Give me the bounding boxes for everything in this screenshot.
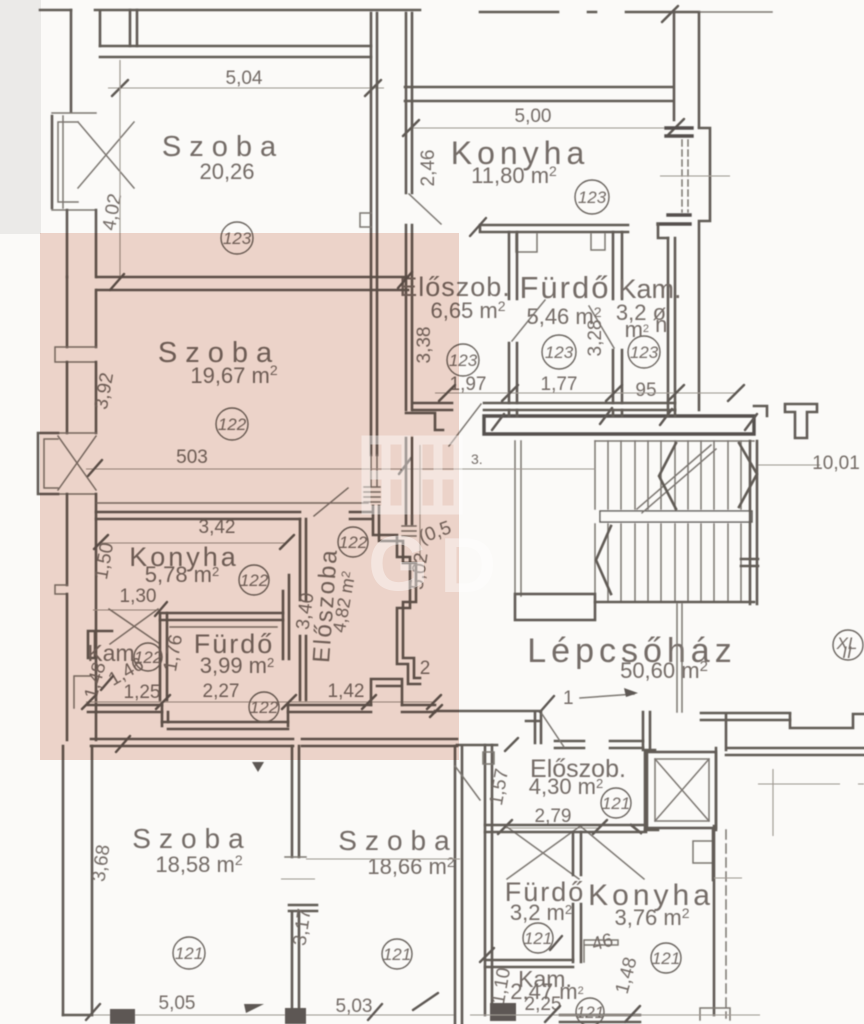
svg-text:50,60 m2: 50,60 m2 [620,658,708,683]
svg-text:5,03: 5,03 [336,996,373,1017]
svg-text:95: 95 [635,380,656,401]
svg-text:3.: 3. [471,451,483,467]
svg-text:Fürdő: Fürdő [520,270,611,305]
svg-text:3,76 m2: 3,76 m2 [614,905,689,930]
svg-text:2,46: 2,46 [418,150,439,187]
svg-text:121: 121 [524,929,552,948]
svg-text:3,28: 3,28 [585,320,606,357]
svg-text:G: G [368,519,429,607]
svg-text:3,2 m2: 3,2 m2 [510,900,572,925]
svg-text:11,80 m2: 11,80 m2 [471,163,557,188]
svg-text:Szoba: Szoba [338,825,457,856]
svg-text:123: 123 [578,188,607,207]
svg-text:1: 1 [563,688,574,709]
svg-text:121: 121 [383,945,411,964]
svg-text:5,05: 5,05 [159,993,196,1014]
svg-text:1,77: 1,77 [541,374,578,395]
svg-text:4,30 m2: 4,30 m2 [529,774,604,799]
svg-text:5,04: 5,04 [226,68,263,89]
svg-text:5,00: 5,00 [515,106,552,127]
svg-text:II: II [842,643,852,662]
svg-text:121: 121 [652,949,680,968]
svg-text:123: 123 [545,343,574,362]
svg-text:121: 121 [602,794,630,813]
svg-text:Szoba: Szoba [132,823,251,854]
svg-text:123: 123 [630,343,659,362]
svg-text:121: 121 [175,944,203,963]
svg-text:18,66 m2: 18,66 m2 [367,854,455,879]
svg-text:20,26: 20,26 [199,159,254,184]
svg-text:D: D [440,521,496,609]
svg-text:18,58 m2: 18,58 m2 [155,852,243,877]
svg-text:10,01: 10,01 [812,453,860,474]
svg-text:121: 121 [576,1003,604,1022]
